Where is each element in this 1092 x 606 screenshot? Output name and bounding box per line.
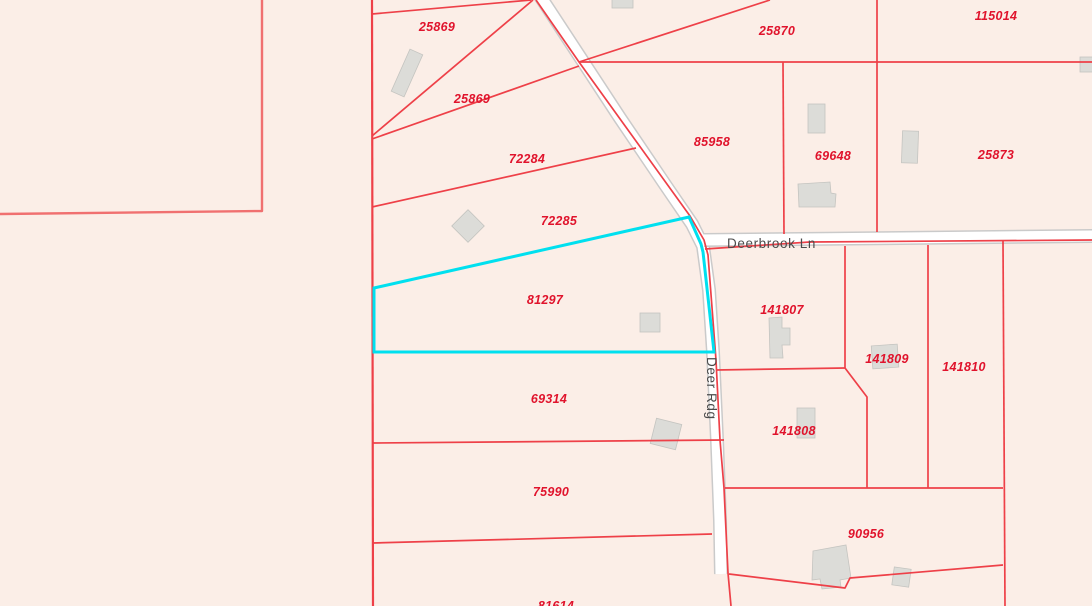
parcel-boundary-line — [372, 0, 531, 14]
map-canvas[interactable]: 25869 25869 72284 72285 81297 69314 7599… — [0, 0, 1092, 606]
parcel-label-81614: 81614 — [538, 599, 574, 606]
parcel-label-81297: 81297 — [527, 293, 564, 307]
parcel-label-72285: 72285 — [541, 214, 578, 228]
parcel-boundary-line — [783, 62, 784, 234]
building-footprint — [808, 104, 825, 133]
parcel-label-25869-a: 25869 — [418, 20, 455, 34]
building-footprint — [650, 418, 682, 450]
parcel-boundary-line — [373, 534, 712, 543]
building-footprint — [1080, 57, 1092, 72]
parcel-boundary-line — [729, 565, 1003, 588]
building-footprint — [612, 0, 633, 8]
parcel-label-69314: 69314 — [531, 392, 567, 406]
parcel-boundary-line — [579, 0, 770, 62]
parcel-label-25869-b: 25869 — [453, 92, 490, 106]
parcel-label-25873: 25873 — [977, 148, 1014, 162]
parcel-boundary-line — [845, 368, 867, 488]
parcel-label-141808: 141808 — [772, 424, 816, 438]
parcel-label-75990: 75990 — [533, 485, 569, 499]
buildings-layer — [391, 0, 1092, 589]
parcel-label-85958: 85958 — [694, 135, 730, 149]
parcel-label-141807: 141807 — [760, 303, 804, 317]
parcel-label-141810: 141810 — [942, 360, 986, 374]
building-footprint — [892, 567, 911, 587]
parcel-label-25870: 25870 — [758, 24, 795, 38]
building-footprint — [452, 210, 485, 243]
building-footprint — [798, 182, 836, 207]
parcel-boundary-line — [536, 0, 731, 606]
parcel-boundary-line — [1003, 241, 1005, 606]
selected-parcel-81297-outline[interactable] — [374, 217, 714, 352]
building-footprint — [901, 131, 918, 164]
parcel-label-115014: 115014 — [975, 9, 1018, 23]
street-label-deerbrook-ln: Deerbrook Ln — [727, 236, 816, 251]
parcel-label-69648: 69648 — [815, 149, 851, 163]
parcel-label-141809: 141809 — [865, 352, 909, 366]
parcel-label-90956: 90956 — [848, 527, 885, 541]
parcel-boundary-line — [716, 368, 845, 370]
building-footprint — [769, 317, 790, 358]
building-footprint — [640, 313, 660, 332]
parcel-boundary-line — [0, 0, 262, 214]
parcel-boundary-line — [372, 148, 636, 207]
building-footprint — [812, 545, 851, 589]
parcel-label-72284: 72284 — [509, 152, 545, 166]
street-label-deer-rdg: Deer Rdg — [704, 357, 719, 420]
map-viewport[interactable]: 25869 25869 72284 72285 81297 69314 7599… — [0, 0, 1092, 606]
building-footprint — [391, 49, 422, 97]
